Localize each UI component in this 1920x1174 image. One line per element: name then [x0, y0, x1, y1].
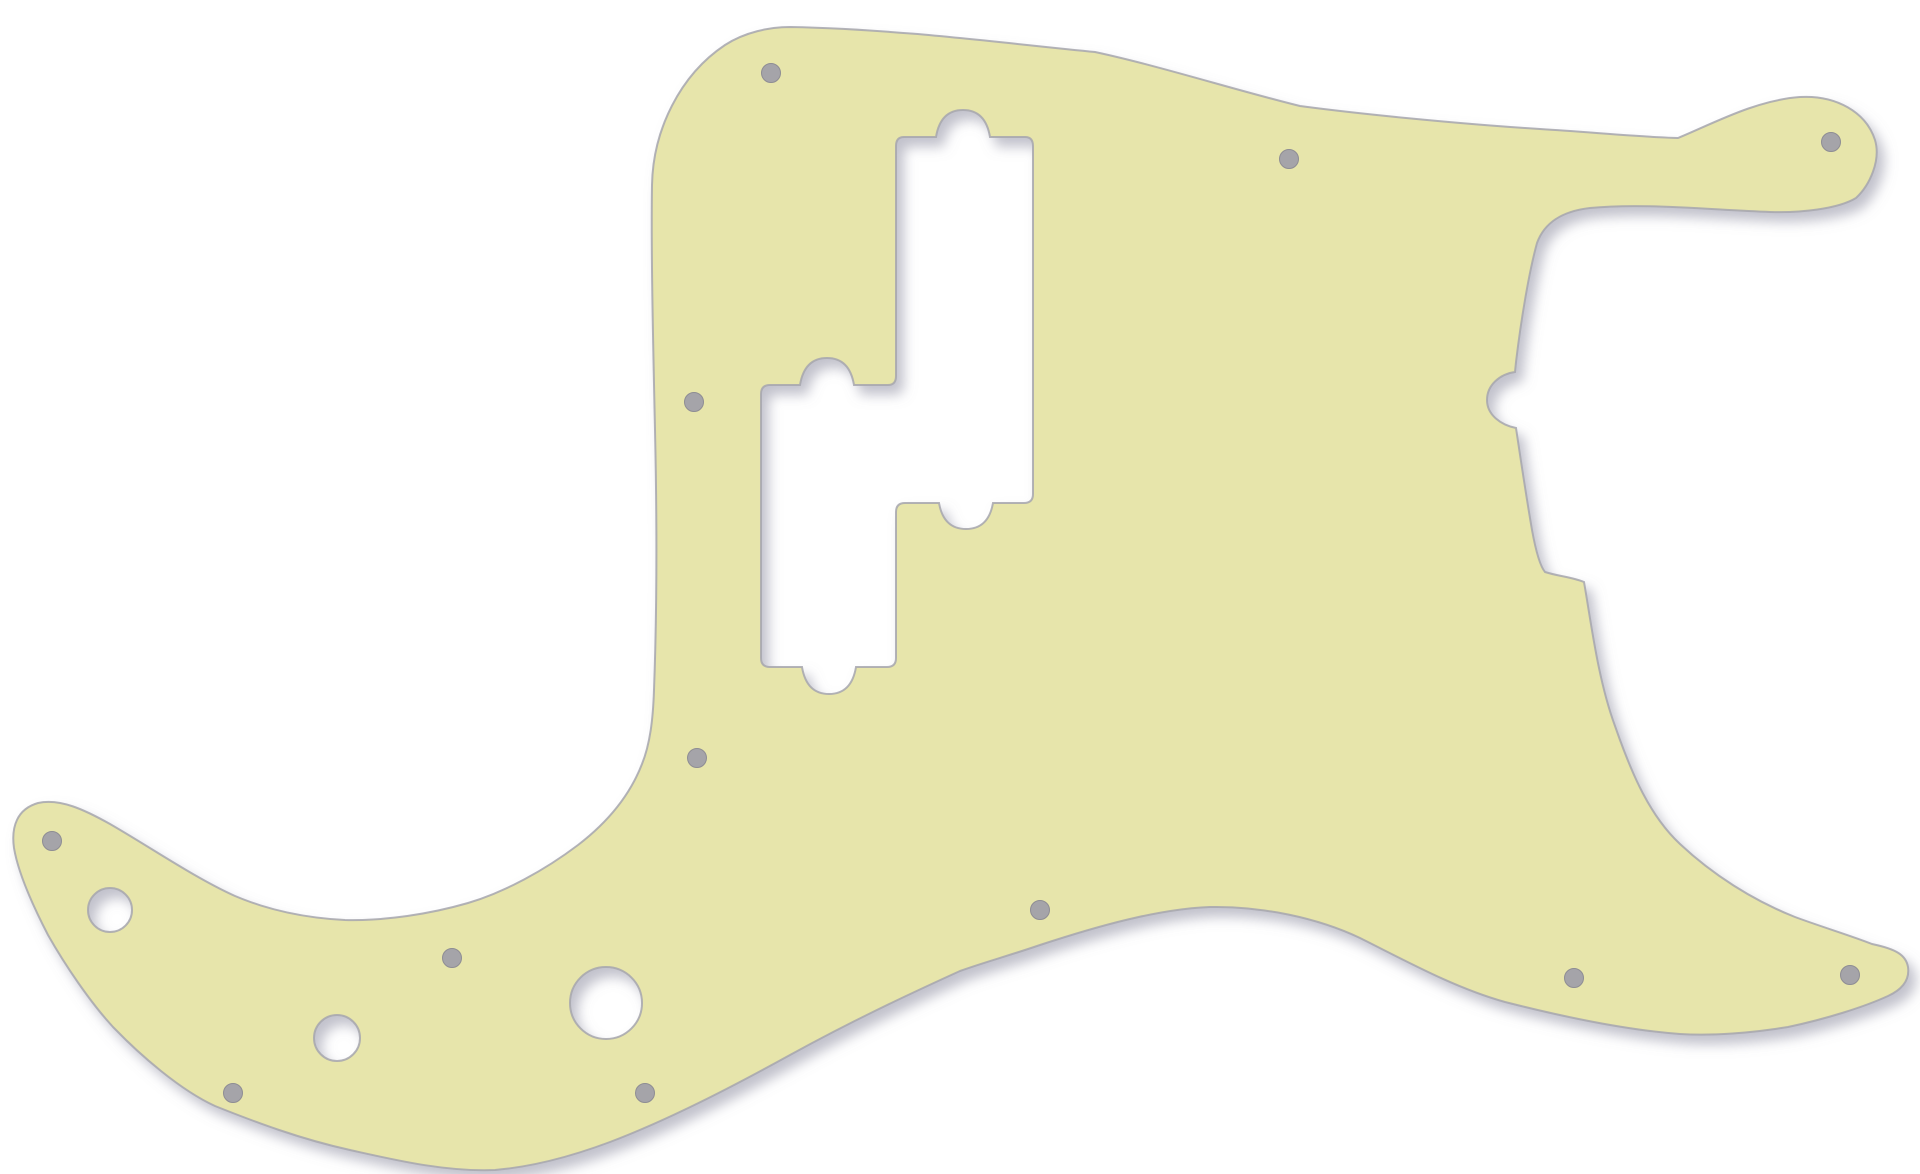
screw-hole: [43, 832, 62, 851]
screw-hole: [1822, 133, 1841, 152]
screw-hole: [688, 749, 707, 768]
screw-hole: [224, 1084, 243, 1103]
pickguard-image: [0, 0, 1920, 1174]
screw-hole: [443, 949, 462, 968]
screw-hole: [1841, 966, 1860, 985]
screw-hole: [636, 1084, 655, 1103]
screw-hole: [1565, 969, 1584, 988]
screw-hole: [1031, 901, 1050, 920]
screw-hole: [762, 64, 781, 83]
screw-hole: [685, 393, 704, 412]
screw-hole: [1280, 150, 1299, 169]
product-image-canvas: [0, 0, 1920, 1174]
